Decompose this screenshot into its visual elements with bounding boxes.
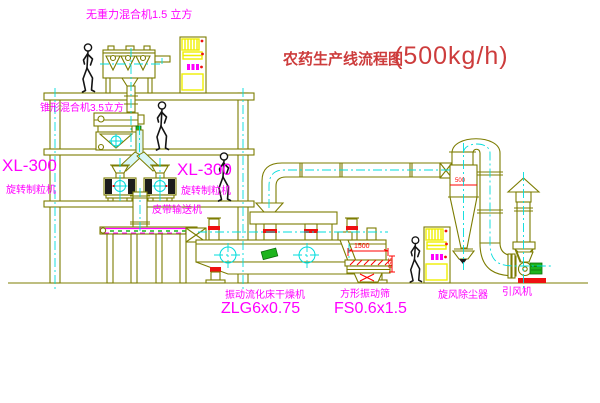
belt-conveyor — [100, 227, 197, 283]
label-gravity-free-mixer: 无重力混合机1.5 立方 — [86, 10, 192, 21]
cad-flow-diagram: 农药生产线流程图 (500kg/h) 无重力混合机1.5 立方 锥形混合机3.5… — [0, 0, 600, 403]
label-cyclone: 旋风除尘器 — [438, 291, 488, 301]
dimension-sieve-length: 1500 — [354, 243, 370, 250]
worker-top-floor — [83, 44, 95, 92]
diagram-title-capacity: (500kg/h) — [394, 44, 509, 69]
dimension-cyclone: 500 — [455, 178, 465, 184]
label-sieve-name: 方形振动筛 — [340, 290, 390, 300]
induced-draft-fan — [517, 252, 546, 283]
label-granulator-left-name: 旋转制粒机 — [6, 186, 56, 196]
label-sieve-model: FS0.6x1.5 — [334, 301, 407, 317]
dryer-exhaust-duct — [262, 163, 452, 204]
cyclone-separator — [448, 139, 516, 278]
label-granulator-left-model: XL-300 — [2, 157, 57, 174]
label-fan: 引风机 — [502, 288, 532, 298]
label-conical-mixer: 锥形混合机3.5立方 — [40, 104, 124, 114]
worker-ground — [410, 237, 421, 282]
label-belt-conveyor: 皮带输送机 — [152, 206, 202, 216]
label-granulator-right-model: XL-300 — [177, 161, 232, 178]
dimension-sieve-height: 550 — [386, 258, 392, 268]
label-dryer-model: ZLG6x0.75 — [221, 301, 300, 317]
worker-second-floor — [157, 102, 169, 150]
diagram-title: 农药生产线流程图 — [283, 52, 403, 67]
control-cabinet-upper — [180, 37, 206, 93]
label-granulator-right-name: 旋转制粒机 — [181, 187, 231, 197]
control-cabinet-lower — [424, 227, 450, 283]
